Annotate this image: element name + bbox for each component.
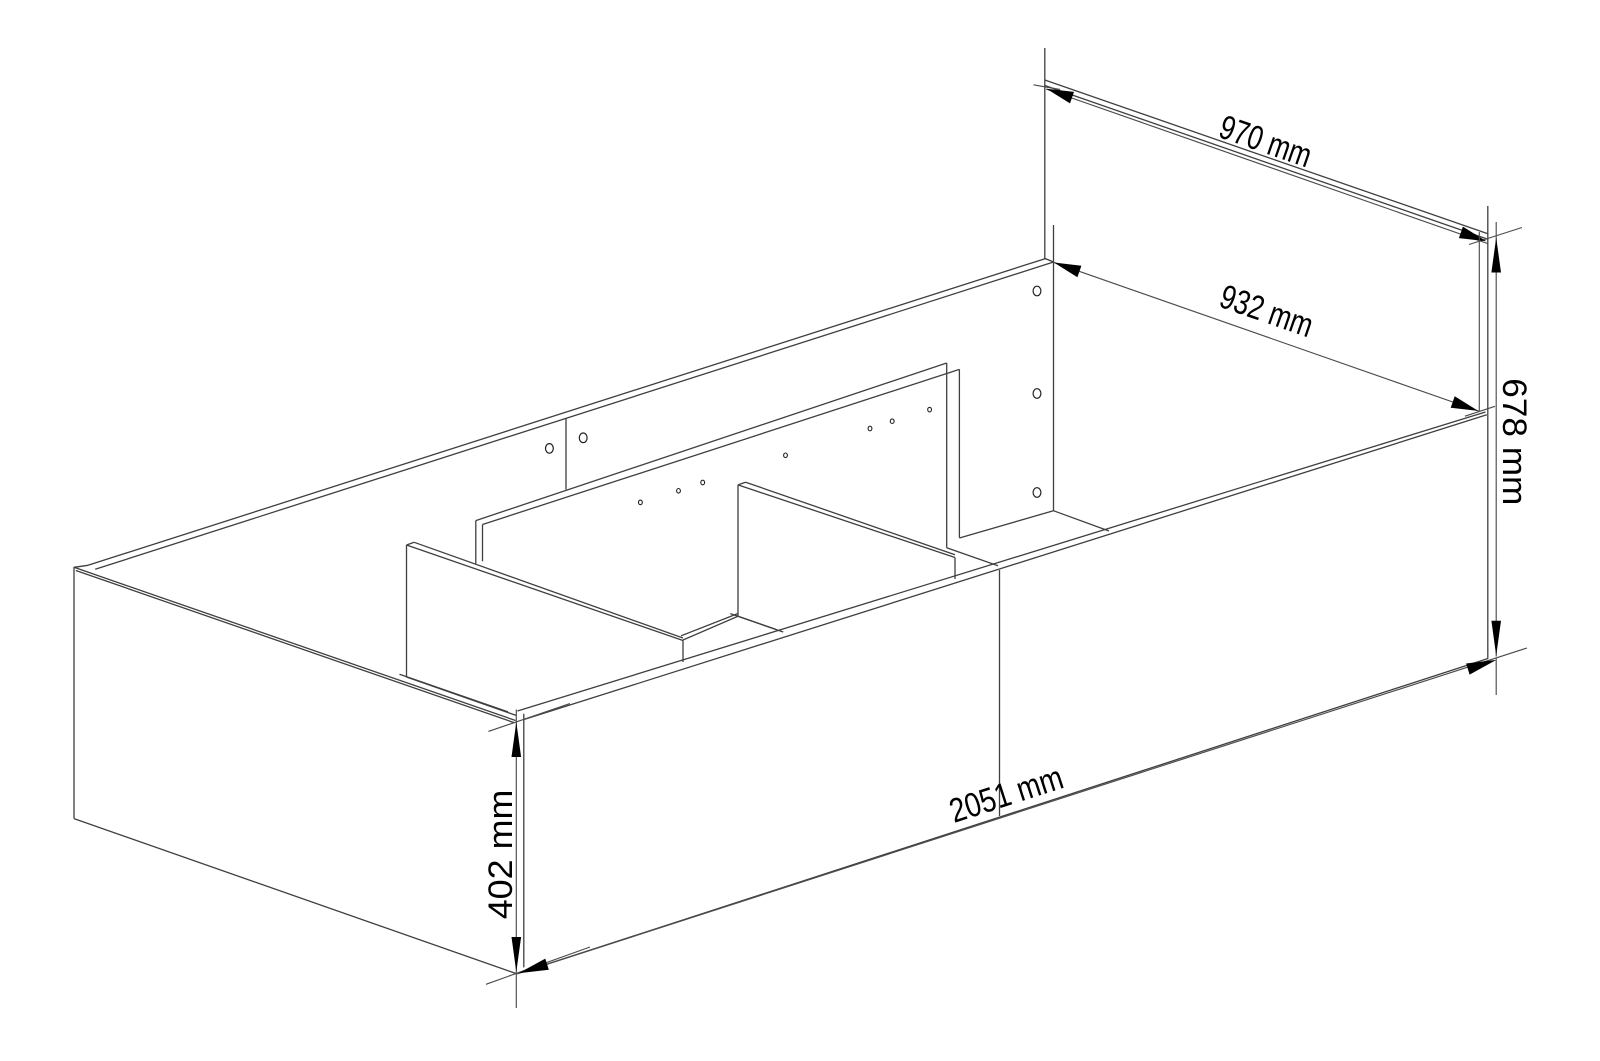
svg-text:402 mm: 402 mm [482,790,520,920]
svg-text:678 mm: 678 mm [1495,378,1533,505]
